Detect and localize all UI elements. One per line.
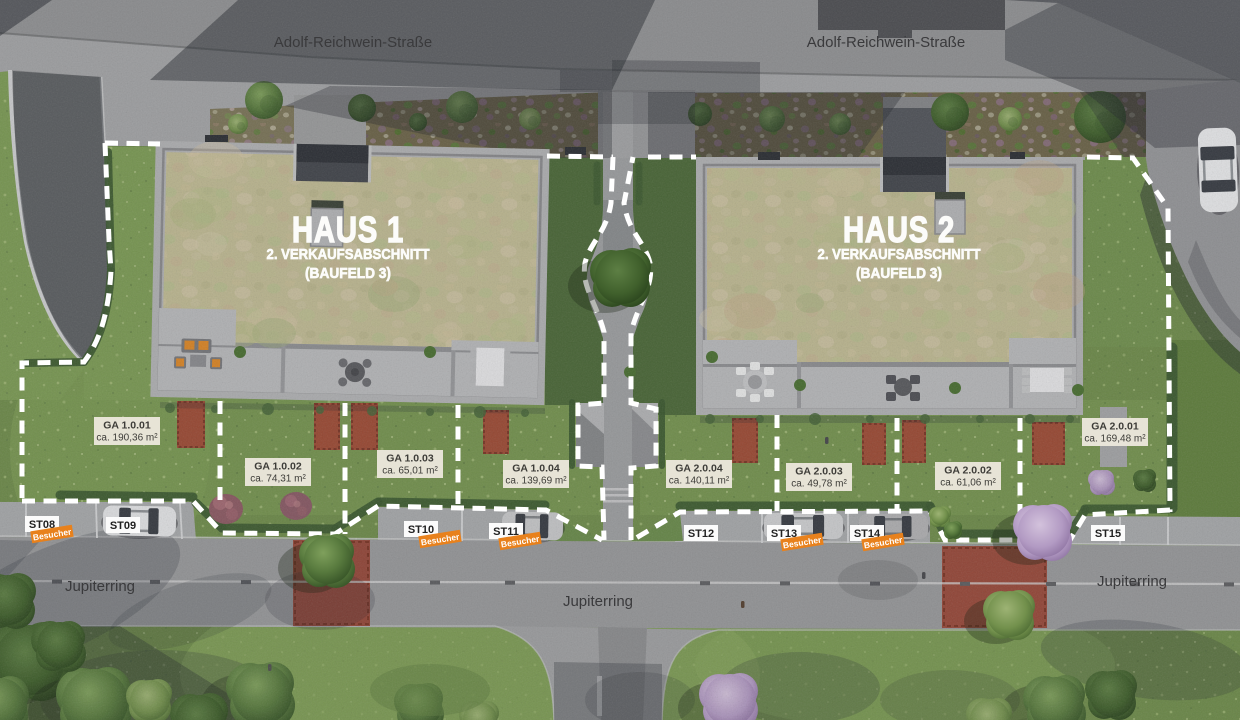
svg-text:Jupiterring: Jupiterring xyxy=(65,578,135,595)
svg-text:HAUS 2: HAUS 2 xyxy=(843,209,955,250)
svg-text:2. VERKAUFSABSCHNITT: 2. VERKAUFSABSCHNITT xyxy=(818,246,981,263)
svg-text:GA 2.0.01: GA 2.0.01 xyxy=(1091,421,1139,433)
svg-text:ca. 169,48 m²: ca. 169,48 m² xyxy=(1084,434,1146,445)
svg-text:GA 2.0.02: GA 2.0.02 xyxy=(944,465,992,477)
svg-text:ST10: ST10 xyxy=(408,524,434,536)
svg-text:ST09: ST09 xyxy=(110,520,136,532)
svg-text:2. VERKAUFSABSCHNITT: 2. VERKAUFSABSCHNITT xyxy=(267,246,430,263)
svg-text:ca. 61,06 m²: ca. 61,06 m² xyxy=(940,478,996,489)
svg-text:ca. 65,01 m²: ca. 65,01 m² xyxy=(382,466,438,477)
svg-text:ca. 139,69 m²: ca. 139,69 m² xyxy=(505,476,567,487)
svg-text:(BAUFELD 3): (BAUFELD 3) xyxy=(305,265,391,282)
svg-text:GA 1.0.02: GA 1.0.02 xyxy=(254,461,302,473)
svg-text:ca. 190,36 m²: ca. 190,36 m² xyxy=(96,433,158,444)
svg-text:GA 1.0.03: GA 1.0.03 xyxy=(386,453,434,465)
svg-text:GA 2.0.03: GA 2.0.03 xyxy=(795,466,843,478)
svg-text:Adolf-Reichwein-Straße: Adolf-Reichwein-Straße xyxy=(274,34,432,51)
svg-text:GA 2.0.04: GA 2.0.04 xyxy=(675,463,723,475)
svg-text:HAUS 1: HAUS 1 xyxy=(292,209,404,250)
svg-text:Jupiterring: Jupiterring xyxy=(563,593,633,610)
svg-text:ca. 74,31 m²: ca. 74,31 m² xyxy=(250,474,306,485)
svg-text:GA 1.0.04: GA 1.0.04 xyxy=(512,463,560,475)
svg-text:Jupiterring: Jupiterring xyxy=(1097,573,1167,590)
svg-text:ST15: ST15 xyxy=(1095,528,1121,540)
svg-text:ST12: ST12 xyxy=(688,528,714,540)
svg-text:ca. 49,78 m²: ca. 49,78 m² xyxy=(791,479,847,490)
svg-text:Adolf-Reichwein-Straße: Adolf-Reichwein-Straße xyxy=(807,34,965,51)
svg-text:(BAUFELD 3): (BAUFELD 3) xyxy=(856,265,942,282)
svg-text:ca. 140,11 m²: ca. 140,11 m² xyxy=(669,476,730,487)
svg-text:GA 1.0.01: GA 1.0.01 xyxy=(103,420,151,432)
